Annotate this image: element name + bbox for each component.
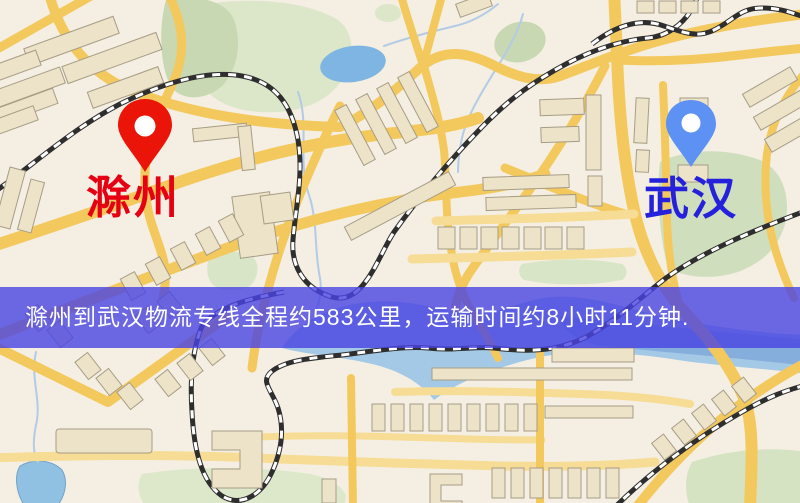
route-info-banner: 滁州到武汉物流专线全程约583公里，运输时间约8小时11分钟. bbox=[0, 287, 800, 348]
red-pin-hole bbox=[135, 116, 156, 137]
pond bbox=[17, 461, 66, 503]
blue-pin-hole bbox=[682, 114, 701, 133]
map-canvas[interactable] bbox=[0, 0, 800, 503]
destination-city-label: 武汉 bbox=[644, 177, 738, 222]
route-info-text: 滁州到武汉物流专线全程约583公里，运输时间约8小时11分钟. bbox=[25, 304, 689, 330]
map-view[interactable]: 滁州 武汉 滁州到武汉物流专线全程约583公里，运输时间约8小时11分钟. bbox=[0, 0, 800, 503]
origin-city-label: 滁州 bbox=[86, 176, 180, 221]
